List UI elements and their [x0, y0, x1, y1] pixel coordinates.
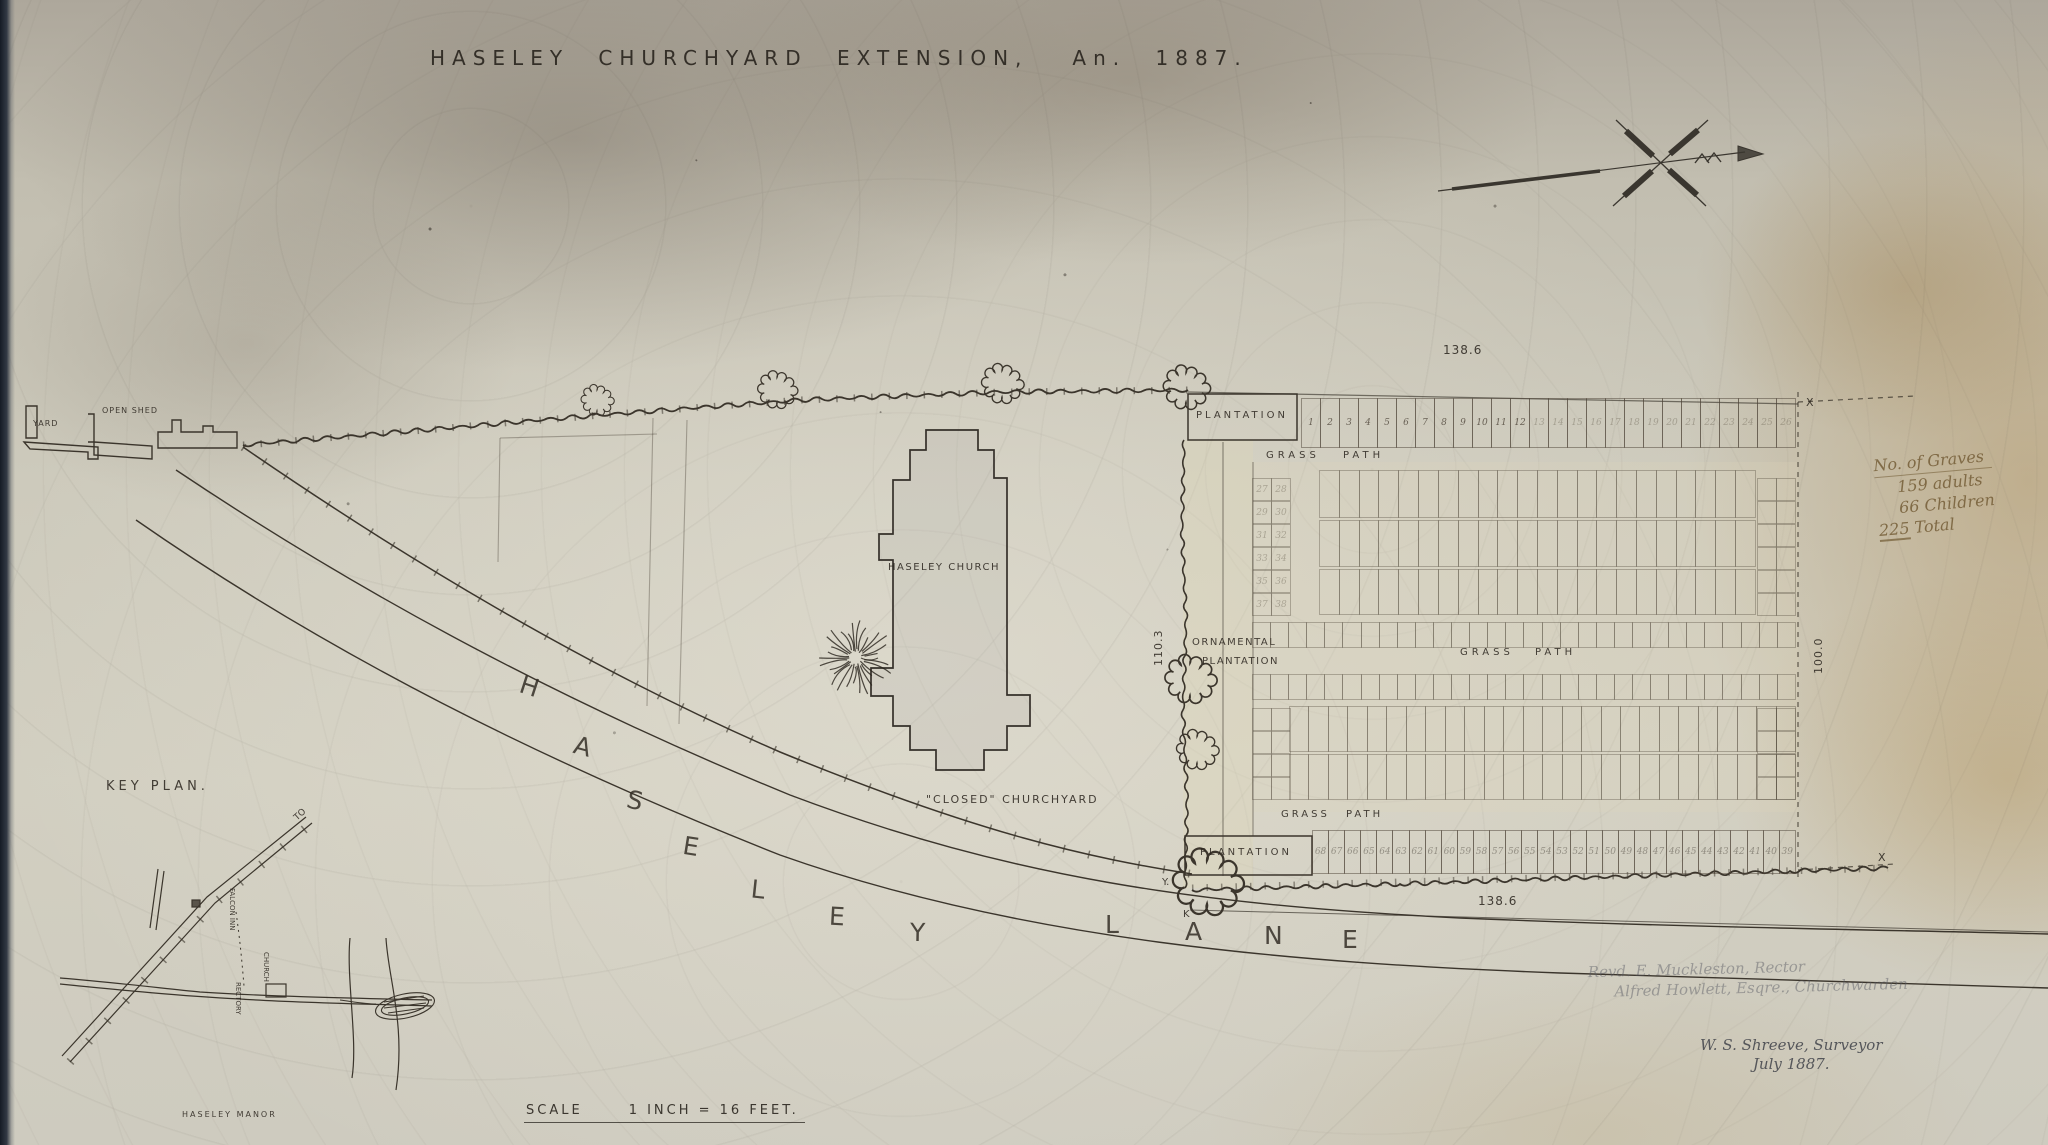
grave-plot-cell — [1319, 470, 1340, 518]
grave-plot-cell — [1722, 674, 1741, 700]
north-arrow-icon — [1438, 120, 1763, 206]
grave-plot-pair-cell — [1758, 708, 1777, 731]
key-plan-rectory-label: RECTORY — [234, 982, 242, 1015]
grave-plot-cell — [1542, 706, 1562, 752]
grave-plot-cell — [1445, 754, 1465, 800]
grave-plot-cell: 1 — [1301, 398, 1321, 448]
grave-plot-cell — [1704, 674, 1723, 700]
plantation-top-label: PLANTATION — [1196, 410, 1288, 421]
grave-plot-cell — [1616, 470, 1637, 518]
grave-plot-pair-cell — [1777, 501, 1796, 524]
grave-plot-cell — [1616, 520, 1637, 567]
grave-plot-cell: 33 — [1252, 547, 1272, 570]
grave-plot-cell — [1289, 706, 1309, 752]
grave-plot-cell — [1359, 520, 1380, 567]
grave-plot-cell — [1523, 622, 1542, 648]
grave-plot-cell — [1735, 569, 1756, 615]
grave-plot-cell — [1271, 777, 1291, 800]
grave-plot-cell — [1698, 706, 1718, 752]
grave-plot-cell — [1252, 674, 1271, 700]
grave-plot-pair-cell — [1758, 754, 1777, 777]
grave-plot-cell — [1776, 547, 1796, 570]
grave-plot-cell: 59 — [1457, 830, 1474, 874]
grave-plot-pair-cell: 30 — [1272, 501, 1291, 524]
grave-plot-cell: 45 — [1682, 830, 1699, 874]
grave-plot-cell: 31 — [1252, 524, 1272, 547]
grave-plot-cell — [1386, 706, 1406, 752]
grave-plot-cell — [1639, 754, 1659, 800]
grave-plot-pair-cell — [1777, 478, 1796, 501]
grave-plot-cell — [1484, 706, 1504, 752]
plantation-bottom-label: PLANTATION — [1200, 847, 1292, 858]
grave-plot-cell — [1537, 569, 1558, 615]
grave-plot-cell — [1478, 569, 1499, 615]
grave-plot-cell — [1361, 622, 1380, 648]
grave-plot-cell — [1398, 520, 1419, 567]
grave-plot-cell — [1659, 754, 1679, 800]
grave-plot-cell — [1319, 569, 1340, 615]
grave-plot-cell — [1614, 674, 1633, 700]
grave-plot-cell: 62 — [1409, 830, 1426, 874]
grave-plot-cell — [1398, 470, 1419, 518]
grave-plot-row — [1320, 520, 1756, 567]
grave-plot-cell — [1378, 470, 1399, 518]
lane-letter: L — [750, 874, 767, 904]
grave-plot-cell — [1616, 569, 1637, 615]
grave-plot-cell: 61 — [1425, 830, 1442, 874]
lane-letter: Y — [910, 918, 926, 947]
grave-plot-cell — [1270, 622, 1289, 648]
grave-plot-cell: 38 — [1271, 593, 1291, 616]
grave-plot-cell — [1505, 674, 1524, 700]
grave-plot-cell: 55 — [1521, 830, 1538, 874]
ornamental-strip-west-edge — [1181, 440, 1189, 888]
grave-plot-cell — [1577, 569, 1598, 615]
plan-title: HASELEY CHURCHYARD EXTENSION, An. 1887. — [430, 46, 1248, 70]
grave-plot-cell — [1487, 674, 1506, 700]
grass-path-top-label: GRASS PATH — [1266, 450, 1384, 461]
graves-total-word: Total — [1914, 514, 1956, 536]
grave-plot-row — [1320, 470, 1756, 518]
grave-plot-pair-cell — [1777, 777, 1796, 800]
ornamental-label-2: PLANTATION — [1202, 656, 1279, 667]
grave-plot-cell — [1695, 470, 1716, 518]
boundary-trees — [581, 363, 1244, 915]
grave-plot-cell: 19 — [1643, 398, 1663, 448]
grave-plot-cell — [1717, 754, 1737, 800]
grave-plot-cell — [1656, 569, 1677, 615]
closed-churchyard-label: "CLOSED" CHURCHYARD — [926, 793, 1099, 806]
grave-plot-pair-cell: 27 — [1253, 478, 1272, 501]
grave-plot-cell — [1676, 569, 1697, 615]
grave-plot-cell — [1478, 520, 1499, 567]
grave-plot-cell — [1252, 708, 1272, 731]
key-plan-to-label: TO — [292, 807, 308, 823]
grave-plot-pair-cell — [1777, 547, 1796, 570]
grave-plot-cell — [1319, 520, 1340, 567]
grave-plot-cell — [1581, 754, 1601, 800]
grave-plot-cell — [1517, 569, 1538, 615]
grave-plot-cell — [1659, 706, 1679, 752]
grave-plot-cell: 3 — [1339, 398, 1359, 448]
grave-plot-cell: 29 — [1252, 501, 1272, 524]
grave-plot-cell — [1324, 674, 1343, 700]
grave-plot-cell — [1777, 622, 1796, 648]
lane-letter: A — [571, 730, 595, 762]
paper-left-edge — [0, 0, 15, 1145]
dimension-east: 100.0 — [1812, 638, 1825, 675]
grave-plot-cell — [1487, 622, 1506, 648]
grave-plot-cell — [1757, 478, 1777, 501]
grave-plot-pair-cell — [1253, 777, 1272, 800]
grave-plot-cell — [1523, 754, 1543, 800]
grave-plot-cell — [1379, 622, 1398, 648]
grave-plot-cell — [1695, 520, 1716, 567]
grave-plot-cell — [1735, 520, 1756, 567]
grave-plot-cell: 60 — [1441, 830, 1458, 874]
grave-plot-pair-cell: 34 — [1272, 547, 1291, 570]
lane-letter: N — [1264, 921, 1283, 950]
grave-plot-cell — [1776, 501, 1796, 524]
grave-plot-cell — [1397, 674, 1416, 700]
grave-plot-cell — [1397, 622, 1416, 648]
grave-plot-cell — [1581, 706, 1601, 752]
grave-plot-pair-cell — [1758, 524, 1777, 547]
grave-plot-cell — [1557, 520, 1578, 567]
grave-plot-cell — [1271, 731, 1291, 754]
grave-plot-cell — [1596, 674, 1615, 700]
grave-plot-cell: 46 — [1666, 830, 1683, 874]
grave-plot-cell — [1722, 622, 1741, 648]
grave-plot-cell — [1620, 706, 1640, 752]
grave-plot-cell — [1678, 706, 1698, 752]
grave-plot-cell — [1636, 520, 1657, 567]
surveyor-line-2: July 1887. — [1700, 1055, 1883, 1074]
grave-plot-cell — [1517, 520, 1538, 567]
grave-plot-cell: 23 — [1719, 398, 1739, 448]
grave-plot-cell — [1620, 754, 1640, 800]
grave-plot-row — [1290, 754, 1796, 800]
grave-plot-cell — [1650, 622, 1669, 648]
lane-letter: S — [624, 785, 646, 817]
grave-plot-cell — [1578, 674, 1597, 700]
grave-plot-cell — [1715, 569, 1736, 615]
grave-plot-cell: 24 — [1738, 398, 1758, 448]
grave-plot-cell: 54 — [1537, 830, 1554, 874]
grave-plot-cell: 51 — [1586, 830, 1603, 874]
dimension-top: 138.6 — [1443, 343, 1482, 357]
grave-plot-cell: 37 — [1252, 593, 1272, 616]
grave-plot-cell: 36 — [1271, 570, 1291, 593]
lane-letter: E — [828, 902, 845, 932]
grave-plot-cell: 41 — [1747, 830, 1764, 874]
grave-plot-cell — [1776, 777, 1796, 800]
scanned-plan: HASELEY CHURCHYARD EXTENSION, An. 1887. … — [0, 0, 2048, 1145]
grave-plot-cell — [1497, 470, 1518, 518]
grave-plot-cell — [1656, 470, 1677, 518]
grave-plot-cell — [1252, 622, 1271, 648]
grave-plot-cell — [1537, 470, 1558, 518]
grave-plot-cell — [1252, 754, 1272, 777]
grave-plot-cell — [1542, 622, 1561, 648]
grave-plot-cell — [1378, 569, 1399, 615]
grave-plot-cell — [1578, 622, 1597, 648]
officials-note: Revd. E. Muckleston, Rector Alfred Howle… — [1588, 954, 1908, 1002]
grave-plot-pair-cell — [1777, 708, 1796, 731]
dimension-west: 110.3 — [1152, 630, 1165, 667]
grave-plot-cell — [1678, 754, 1698, 800]
grave-plot-cell — [1339, 520, 1360, 567]
grave-plot-cell — [1438, 470, 1459, 518]
grave-plot-cell — [1776, 524, 1796, 547]
grave-plot-cell: 26 — [1776, 398, 1796, 448]
grave-plot-cell: 5 — [1377, 398, 1397, 448]
grave-plot-cell — [1741, 674, 1760, 700]
grave-plot-cell — [1497, 569, 1518, 615]
grave-plot-cell: 12 — [1510, 398, 1530, 448]
grave-plot-pair-cell — [1272, 777, 1291, 800]
grave-plot-cell: 16 — [1586, 398, 1606, 448]
grave-plot-cell — [1415, 674, 1434, 700]
grave-plot-row: 1234567891011121314151617181920212223242… — [1302, 398, 1796, 448]
grave-plot-cell — [1478, 470, 1499, 518]
grave-plot-pair-cell: 38 — [1272, 593, 1291, 616]
grave-plot-pair-cell — [1777, 524, 1796, 547]
grave-plot-cell — [1433, 622, 1452, 648]
grave-plot-cell: 44 — [1698, 830, 1715, 874]
grave-plot-cell — [1562, 754, 1582, 800]
grave-plot-cell: 40 — [1763, 830, 1780, 874]
grave-plot-cell — [1668, 622, 1687, 648]
grave-plot-cell — [1523, 674, 1542, 700]
grave-plot-cell — [1698, 754, 1718, 800]
grave-plot-cell — [1776, 478, 1796, 501]
grave-plot-row — [1253, 622, 1796, 648]
grave-plot-pair-cell: 28 — [1272, 478, 1291, 501]
plan-title-year: An. 1887. — [1072, 46, 1247, 70]
grave-plot-pair-cell: 35 — [1253, 570, 1272, 593]
grave-plot-cell — [1306, 622, 1325, 648]
grave-plot-cell — [1596, 470, 1617, 518]
grave-plot-cell: 34 — [1271, 547, 1291, 570]
north-hedge — [243, 389, 1188, 447]
grave-plot-cell — [1562, 706, 1582, 752]
grave-plot-cell: 68 — [1312, 830, 1329, 874]
lane-letter: A — [1185, 917, 1202, 946]
grave-plot-cell — [1614, 622, 1633, 648]
grave-plot-cell: 28 — [1271, 478, 1291, 501]
grave-plot-cell — [1503, 754, 1523, 800]
grave-plot-cell: 57 — [1489, 830, 1506, 874]
grass-path-bottom-label: GRASS PATH — [1281, 809, 1383, 820]
grave-plot-pair-cell — [1272, 708, 1291, 731]
grave-plot-cell: 56 — [1505, 830, 1522, 874]
grave-plot-cell — [1270, 674, 1289, 700]
grave-plot-cell — [1306, 674, 1325, 700]
church-label: HASELEY CHURCH — [888, 562, 1000, 573]
grave-plot-cell — [1737, 754, 1757, 800]
grave-plot-cell — [1557, 569, 1578, 615]
grave-plot-cell — [1686, 674, 1705, 700]
grave-plot-cell — [1517, 470, 1538, 518]
grave-plot-cell — [1464, 706, 1484, 752]
yew-tree-icon — [819, 620, 891, 694]
grave-plot-cell — [1757, 593, 1777, 616]
grave-plot-cell — [1425, 706, 1445, 752]
grave-plot-cell — [1458, 470, 1479, 518]
grave-plot-cell: 32 — [1271, 524, 1291, 547]
grave-plot-cell — [1668, 674, 1687, 700]
grave-plot-cell — [1704, 622, 1723, 648]
grave-plot-cell: 13 — [1529, 398, 1549, 448]
grave-plot-cell — [1433, 674, 1452, 700]
grave-plot-pair-cell — [1758, 570, 1777, 593]
grave-plot-pair-cell: 36 — [1272, 570, 1291, 593]
grave-plot-cell — [1252, 777, 1272, 800]
grave-plot-pair-cell: 29 — [1253, 501, 1272, 524]
scale-word: SCALE — [526, 1103, 583, 1118]
grave-plot-row: 6867666564636261605958575655545352515049… — [1313, 830, 1796, 874]
grave-plot-cell — [1308, 754, 1328, 800]
survey-mark-y: Y. — [1162, 877, 1169, 888]
grave-plot-cell — [1776, 570, 1796, 593]
grave-plot-cell — [1288, 622, 1307, 648]
grave-plot-cell: 20 — [1662, 398, 1682, 448]
grave-plot-cell — [1451, 622, 1470, 648]
grave-plot-cell: 18 — [1624, 398, 1644, 448]
grave-plot-cell — [1347, 706, 1367, 752]
grave-plot-cell — [1438, 569, 1459, 615]
grave-plot-cell — [1425, 754, 1445, 800]
grave-plot-cell — [1288, 674, 1307, 700]
grave-plot-pair-cell — [1758, 777, 1777, 800]
grave-plot-cell: 48 — [1634, 830, 1651, 874]
grave-plot-pair-cell — [1253, 731, 1272, 754]
grave-plot-cell — [1560, 674, 1579, 700]
lane-letter: L — [1105, 910, 1119, 939]
grave-plot-cell — [1458, 569, 1479, 615]
grave-plot-cell: 35 — [1252, 570, 1272, 593]
grave-plot-cell — [1289, 754, 1309, 800]
grave-plot-cell — [1523, 706, 1543, 752]
grave-plot-cell — [1757, 731, 1777, 754]
grave-plot-pair-cell — [1777, 731, 1796, 754]
grave-plot-cell — [1324, 622, 1343, 648]
grave-plot-cell — [1328, 706, 1348, 752]
grave-plot-cell: 66 — [1344, 830, 1361, 874]
grave-plot-cell — [1342, 622, 1361, 648]
grave-plot-cell — [1398, 569, 1419, 615]
grave-plot-cell — [1339, 470, 1360, 518]
survey-mark-bottom-right: X — [1878, 851, 1886, 864]
grave-plot-cell — [1458, 520, 1479, 567]
grave-plot-pair-cell — [1758, 478, 1777, 501]
grave-plot-cell: 52 — [1570, 830, 1587, 874]
grave-plot-cell — [1757, 754, 1777, 777]
grave-plot-cell — [1418, 569, 1439, 615]
grave-plot-cell — [1342, 674, 1361, 700]
dimension-bottom: 138.6 — [1478, 894, 1517, 908]
lane-letter: E — [681, 831, 701, 862]
grave-plot-cell — [1418, 520, 1439, 567]
grave-plot-pair-cell — [1777, 570, 1796, 593]
grave-plot-cell — [1596, 622, 1615, 648]
grave-plot-cell: 10 — [1472, 398, 1492, 448]
grave-plot-cell — [1577, 520, 1598, 567]
grave-plot-cell — [1759, 674, 1778, 700]
grave-plot-cell — [1464, 754, 1484, 800]
graves-note: No. of Graves 159 adults 66 Children 225… — [1872, 445, 1997, 541]
grave-plot-cell — [1577, 470, 1598, 518]
grave-plot-cell — [1759, 622, 1778, 648]
grave-plot-cell — [1347, 754, 1367, 800]
grave-plot-cell — [1776, 754, 1796, 777]
grave-plot-cell — [1676, 470, 1697, 518]
grave-plot-cell — [1438, 520, 1459, 567]
key-plan-sketch — [60, 817, 437, 1090]
grave-plot-cell: 30 — [1271, 501, 1291, 524]
yard-label: YARD — [33, 419, 58, 428]
grave-plot-cell — [1757, 501, 1777, 524]
grave-plot-cell — [1406, 706, 1426, 752]
grave-plot-pair-cell: 33 — [1253, 547, 1272, 570]
grave-plot-cell: 11 — [1491, 398, 1511, 448]
survey-mark-top-right: X — [1806, 396, 1814, 409]
grave-plot-cell — [1484, 754, 1504, 800]
grave-plot-cell: 64 — [1376, 830, 1393, 874]
grave-plot-cell: 47 — [1650, 830, 1667, 874]
surveyor-line-1: W. S. Shreeve, Surveyor — [1700, 1036, 1883, 1055]
grave-plot-cell — [1757, 777, 1777, 800]
grave-plot-cell — [1418, 470, 1439, 518]
grave-plot-cell — [1560, 622, 1579, 648]
north-hedge-ticks — [243, 390, 1188, 445]
grave-plot-cell — [1503, 706, 1523, 752]
grave-plot-cell — [1735, 470, 1756, 518]
grave-plot-cell — [1361, 674, 1380, 700]
grave-plot-pair-cell — [1777, 593, 1796, 616]
grave-plot-cell: 49 — [1618, 830, 1635, 874]
scale-value: 1 INCH = 16 FEET. — [629, 1103, 799, 1118]
grave-plot-cell — [1776, 593, 1796, 616]
grave-plot-cell: 39 — [1779, 830, 1796, 874]
grave-plot-cell — [1497, 520, 1518, 567]
churchyard-fence — [243, 447, 1192, 874]
grave-plot-cell: 65 — [1360, 830, 1377, 874]
lane-letter: E — [1342, 925, 1358, 954]
grave-plot-pair-cell: 32 — [1272, 524, 1291, 547]
grave-plot-cell — [1636, 569, 1657, 615]
grave-plot-cell: 14 — [1548, 398, 1568, 448]
grave-plot-cell — [1505, 622, 1524, 648]
grave-plot-cell — [1328, 754, 1348, 800]
grave-plot-cell — [1656, 520, 1677, 567]
grave-plot-cell: 21 — [1681, 398, 1701, 448]
grave-plot-pair-cell — [1758, 501, 1777, 524]
grave-plot-cell: 50 — [1602, 830, 1619, 874]
grave-plot-pair-cell — [1758, 731, 1777, 754]
grave-plot-cell — [1757, 570, 1777, 593]
grave-plot-cell — [1632, 674, 1651, 700]
grave-plot-cell — [1557, 470, 1578, 518]
grave-plot-cell — [1757, 524, 1777, 547]
grave-plot-cell — [1777, 674, 1796, 700]
grave-plot-cell: 2 — [1320, 398, 1340, 448]
grave-plot-cell: 67 — [1328, 830, 1345, 874]
grave-plot-cell — [1367, 754, 1387, 800]
grave-plot-cell — [1757, 547, 1777, 570]
grave-plot-cell: 53 — [1553, 830, 1570, 874]
